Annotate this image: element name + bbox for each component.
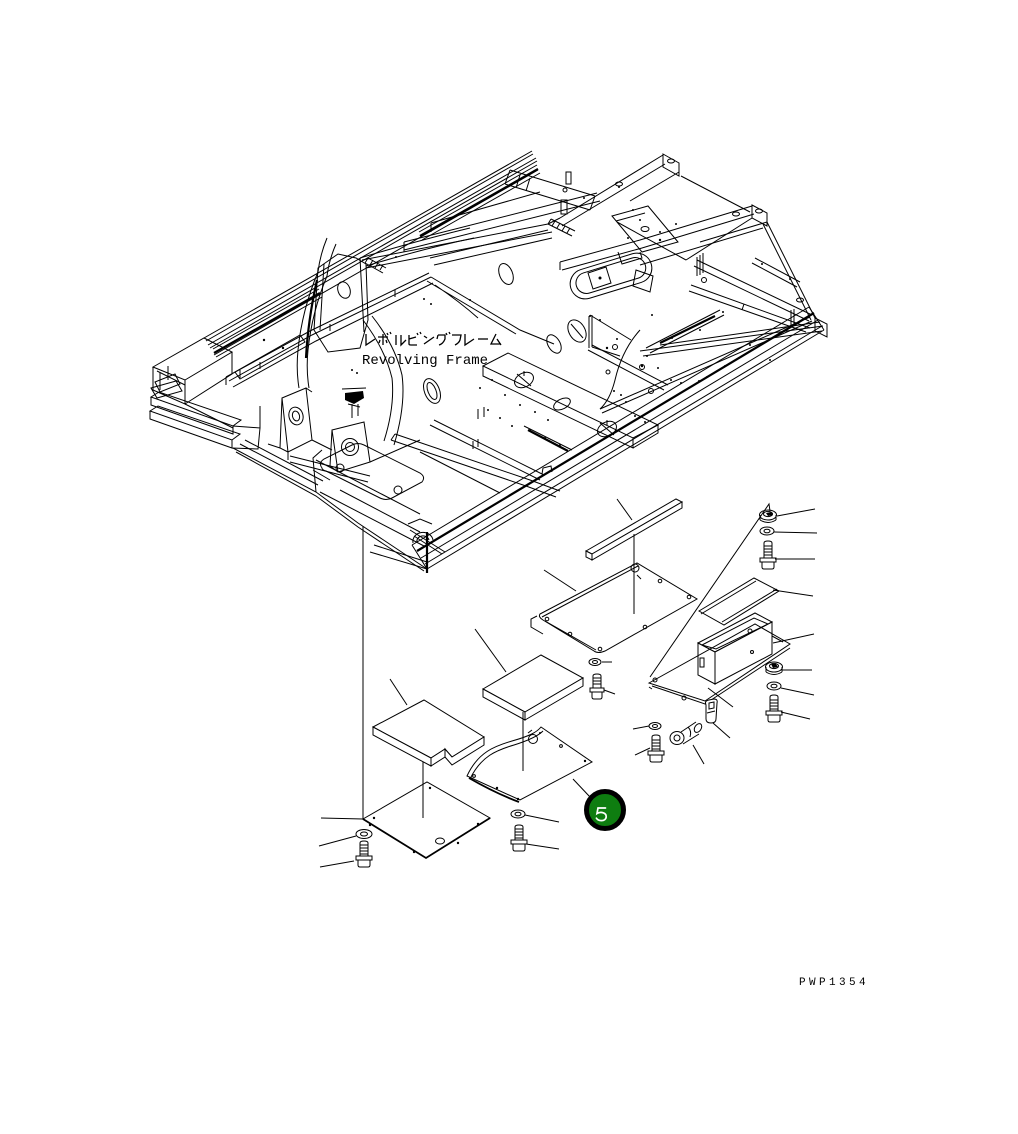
svg-text:PWP1354: PWP1354 [799, 977, 869, 989]
svg-text:Revolving Frame: Revolving Frame [362, 353, 488, 369]
